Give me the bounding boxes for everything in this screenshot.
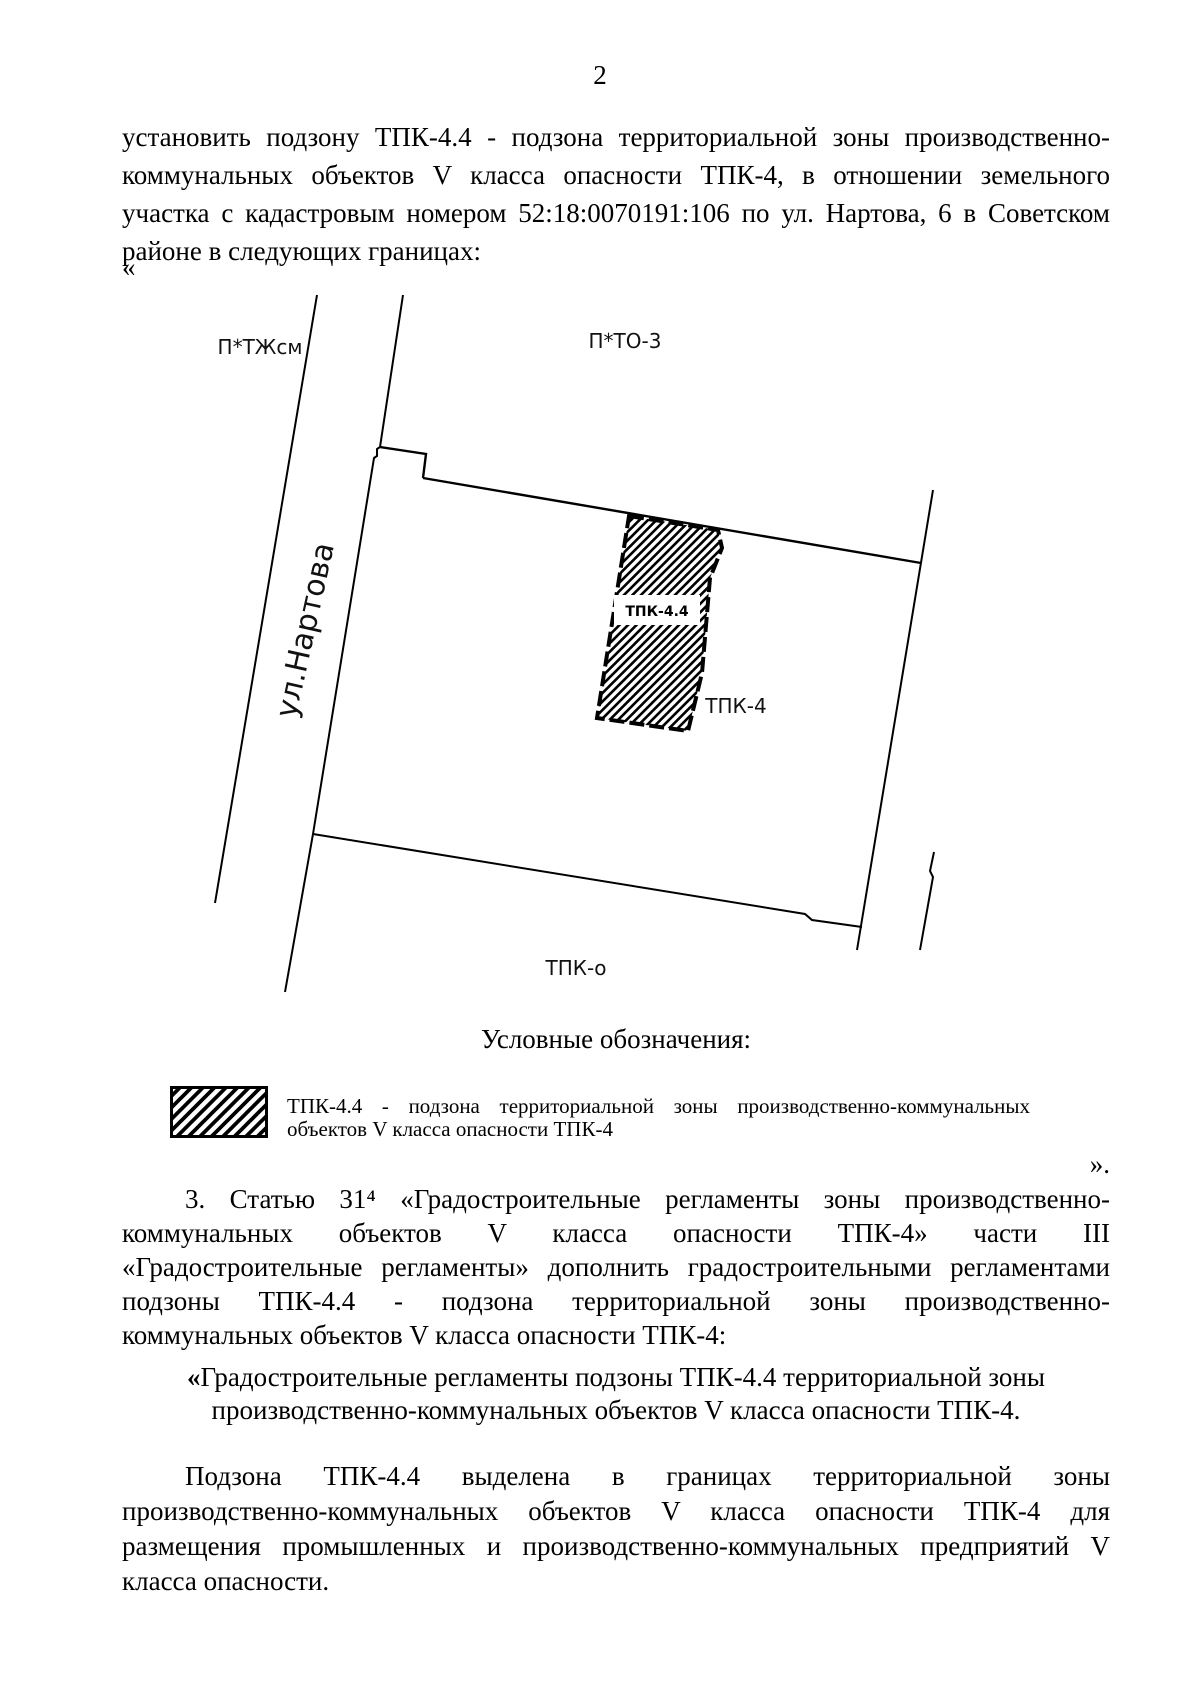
legend-swatch-rect [172, 1088, 267, 1137]
text-line: «Градостроительные регламенты» дополнить… [122, 1250, 1110, 1284]
text-line: районе в следующих границах: [122, 232, 1110, 270]
opening-quote-mark: « [122, 252, 136, 283]
legend-item-text: ТПК-4.4 - подзона территориальной зоны п… [287, 1095, 1030, 1141]
paragraph-article3: 3. Статью 31⁴ «Градостроительные регламе… [122, 1182, 1110, 1352]
text-line: объектов V класса опасности ТПК-4 [287, 1118, 1030, 1141]
document-page: 2 установить подзону ТПК-4.4 - подзона т… [0, 0, 1200, 1697]
text-line: коммунальных объектов V класса опасности… [122, 1318, 1110, 1352]
text-line: установить подзону ТПК-4.4 - подзона тер… [122, 118, 1110, 156]
quote-line1-text: Градостроительные регламенты подзоны ТПК… [200, 1362, 1045, 1392]
legend-swatch-svg [170, 1086, 268, 1138]
zone-label-tpk4: ТПК-4 [704, 694, 766, 718]
text-line: участка с кадастровым номером 52:18:0070… [122, 194, 1110, 232]
text-line: ТПК-4.4 - подзона территориальной зоны п… [287, 1095, 1030, 1118]
text-line: подзоны ТПК-4.4 - подзона территориально… [122, 1284, 1110, 1318]
quote-open-mark: « [187, 1362, 201, 1392]
legend-swatch [170, 1086, 268, 1143]
right-edge-segment [920, 852, 934, 950]
zone-label-tpko: ТПК-о [545, 956, 607, 980]
text-line: коммунальных объектов V класса опасности… [122, 1216, 1110, 1250]
text-line: 3. Статью 31⁴ «Градостроительные регламе… [122, 1182, 1110, 1216]
parcel-bottom-boundary [313, 834, 862, 927]
zone-label-pto3: П*ТО-3 [589, 329, 662, 353]
text-line: коммунальных объектов V класса опасности… [122, 156, 1110, 194]
legend-heading: Условные обозначения: [122, 1024, 1110, 1055]
zoning-map-svg: ТПК-4.4 П*ТЖсм П*ТО-3 ТПК-4 ТПК-о ул.Нар… [150, 270, 950, 1010]
zone-label-ptzhsm: П*ТЖсм [218, 335, 303, 359]
text-line: Подзона ТПК-4.4 выделена в границах терр… [122, 1459, 1110, 1494]
subzone-label: ТПК-4.4 [625, 604, 689, 620]
zoning-map: ТПК-4.4 П*ТЖсм П*ТО-3 ТПК-4 ТПК-о ул.Нар… [150, 270, 950, 1010]
regulations-quote-block: «Градостроительные регламенты подзоны ТП… [122, 1361, 1110, 1427]
closing-quote-mark: ». [122, 1149, 1110, 1180]
text-line: класса опасности. [122, 1564, 1110, 1599]
text-line: размещения промышленных и производственн… [122, 1529, 1110, 1564]
quote-block-line1: «Градостроительные регламенты подзоны ТП… [122, 1361, 1110, 1394]
paragraph-subzone: Подзона ТПК-4.4 выделена в границах терр… [122, 1459, 1110, 1599]
quote-block-line2: производственно-коммунальных объектов V … [122, 1394, 1110, 1427]
text-line: производственно-коммунальных объектов V … [122, 1494, 1110, 1529]
street-name-label: ул.Нартова [269, 539, 342, 721]
page-number: 2 [0, 60, 1200, 91]
paragraph-intro: установить подзону ТПК-4.4 - подзона тер… [122, 118, 1110, 270]
parcel-notch-boundary [380, 447, 426, 478]
